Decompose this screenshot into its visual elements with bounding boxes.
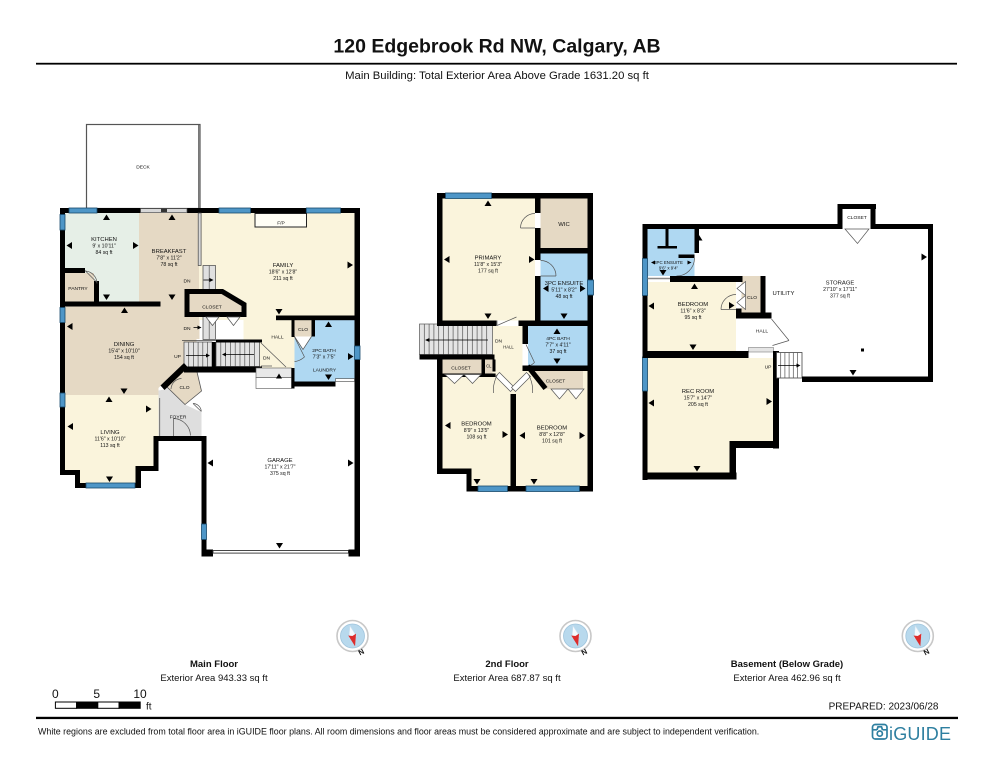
svg-text:N: N <box>922 647 931 657</box>
svg-text:DN: DN <box>495 339 503 345</box>
svg-text:PANTRY: PANTRY <box>68 286 88 292</box>
svg-text:STORAGE: STORAGE <box>826 281 855 287</box>
svg-text:2nd Floor: 2nd Floor <box>485 659 529 670</box>
svg-text:Exterior Area 462.96 sq ft: Exterior Area 462.96 sq ft <box>733 673 841 684</box>
svg-text:F/P: F/P <box>277 221 285 227</box>
svg-text:HALL: HALL <box>756 329 769 335</box>
svg-text:Basement (Below Grade): Basement (Below Grade) <box>731 659 843 670</box>
svg-text:3PC ENSUITE: 3PC ENSUITE <box>545 281 584 287</box>
svg-text:205 sq ft: 205 sq ft <box>688 402 708 408</box>
svg-text:4PC BATH: 4PC BATH <box>546 336 570 342</box>
svg-text:8'8" x 12'8": 8'8" x 12'8" <box>539 432 565 438</box>
svg-text:FOYER: FOYER <box>170 415 187 421</box>
svg-text:White regions are excluded fro: White regions are excluded from total fl… <box>38 727 759 737</box>
svg-text:8'9" x 13'5": 8'9" x 13'5" <box>464 428 490 434</box>
svg-text:5: 5 <box>93 687 100 701</box>
svg-text:211 sq ft: 211 sq ft <box>273 276 293 282</box>
svg-text:113 sq ft: 113 sq ft <box>100 443 120 449</box>
svg-text:27'10" x 17'11": 27'10" x 17'11" <box>823 287 857 293</box>
svg-text:LIVING: LIVING <box>100 430 120 436</box>
svg-text:9'6" x 9'4": 9'6" x 9'4" <box>659 266 679 271</box>
svg-text:GARAGE: GARAGE <box>267 458 292 464</box>
svg-text:11'6" x 8'3": 11'6" x 8'3" <box>680 309 705 315</box>
svg-text:7'7" x 4'11": 7'7" x 4'11" <box>545 343 570 349</box>
svg-text:Main Floor: Main Floor <box>190 659 238 670</box>
svg-text:CLOSET: CLOSET <box>451 366 471 372</box>
svg-text:2PC BATH: 2PC BATH <box>312 348 336 354</box>
svg-text:375 sq ft: 375 sq ft <box>270 471 290 477</box>
svg-text:7'3" x 7'5": 7'3" x 7'5" <box>313 355 336 361</box>
svg-text:N: N <box>580 647 589 657</box>
svg-text:108 sq ft: 108 sq ft <box>467 435 487 441</box>
svg-text:DINING: DINING <box>114 342 135 348</box>
svg-text:BEDROOM: BEDROOM <box>678 302 709 308</box>
svg-text:BREAKFAST: BREAKFAST <box>152 249 187 255</box>
svg-text:10: 10 <box>133 687 147 701</box>
svg-text:120 Edgebrook Rd NW, Calgary,: 120 Edgebrook Rd NW, Calgary, AB <box>333 36 660 58</box>
svg-text:PRIMARY: PRIMARY <box>475 256 502 262</box>
svg-text:15'7" x 14'7": 15'7" x 14'7" <box>684 396 713 402</box>
svg-text:18'6" x 12'8": 18'6" x 12'8" <box>269 270 298 276</box>
svg-text:DN: DN <box>263 356 271 362</box>
svg-text:154 sq ft: 154 sq ft <box>114 355 134 361</box>
svg-text:9' x 10'11": 9' x 10'11" <box>92 244 115 250</box>
svg-text:17'11" x 21'7": 17'11" x 21'7" <box>265 465 296 471</box>
svg-text:CLOSET: CLOSET <box>847 215 867 221</box>
svg-text:BEDROOM: BEDROOM <box>461 422 492 428</box>
svg-text:37 sq ft: 37 sq ft <box>549 349 567 355</box>
svg-text:CLOSET: CLOSET <box>546 379 566 385</box>
svg-text:0: 0 <box>52 687 59 701</box>
svg-text:PREPARED: 2023/06/28: PREPARED: 2023/06/28 <box>829 702 939 713</box>
svg-text:FAMILY: FAMILY <box>273 263 294 269</box>
svg-text:KITCHEN: KITCHEN <box>91 237 117 243</box>
svg-text:ft: ft <box>146 702 152 713</box>
svg-text:5'11" x 8'2": 5'11" x 8'2" <box>551 288 576 294</box>
svg-text:15'4" x 10'10": 15'4" x 10'10" <box>108 349 139 355</box>
svg-text:377 sq ft: 377 sq ft <box>830 294 850 300</box>
svg-text:Exterior Area 687.87 sq ft: Exterior Area 687.87 sq ft <box>453 673 561 684</box>
svg-text:LAUNDRY: LAUNDRY <box>313 368 337 374</box>
svg-text:CLOSET: CLOSET <box>202 305 222 311</box>
svg-text:HALL: HALL <box>271 335 284 341</box>
svg-text:HALL: HALL <box>503 345 514 350</box>
svg-text:84 sq ft: 84 sq ft <box>95 250 113 256</box>
svg-text:UP: UP <box>174 354 181 360</box>
svg-text:WIC: WIC <box>558 222 570 228</box>
svg-text:UTILITY: UTILITY <box>773 291 795 297</box>
svg-text:95 sq ft: 95 sq ft <box>684 315 702 321</box>
svg-text:11'8" x 15'3": 11'8" x 15'3" <box>474 262 502 268</box>
svg-text:Main Building: Total Exterior: Main Building: Total Exterior Area Above… <box>345 70 650 82</box>
svg-text:DECK: DECK <box>136 165 150 171</box>
svg-text:CLO: CLO <box>179 385 189 391</box>
svg-text:CL: CL <box>486 364 492 369</box>
svg-text:DN: DN <box>183 279 191 285</box>
svg-text:CLO: CLO <box>298 327 308 333</box>
svg-text:3PC ENSUITE: 3PC ENSUITE <box>654 260 683 265</box>
svg-text:177 sq ft: 177 sq ft <box>478 269 498 275</box>
svg-text:N: N <box>357 647 366 657</box>
svg-text:DN: DN <box>183 326 191 332</box>
svg-text:iGUIDE: iGUIDE <box>889 724 951 744</box>
svg-text:11'6" x 10'10": 11'6" x 10'10" <box>95 437 126 443</box>
svg-text:48 sq ft: 48 sq ft <box>555 294 573 300</box>
svg-text:101 sq ft: 101 sq ft <box>542 439 562 445</box>
svg-text:UP: UP <box>765 365 772 371</box>
svg-text:Exterior Area 943.33 sq ft: Exterior Area 943.33 sq ft <box>160 673 268 684</box>
svg-text:BEDROOM: BEDROOM <box>537 426 568 432</box>
svg-text:7'8" x 11'2": 7'8" x 11'2" <box>156 256 181 262</box>
svg-text:CLO: CLO <box>747 295 757 301</box>
svg-text:REC ROOM: REC ROOM <box>682 389 714 395</box>
svg-text:78 sq ft: 78 sq ft <box>160 262 178 268</box>
